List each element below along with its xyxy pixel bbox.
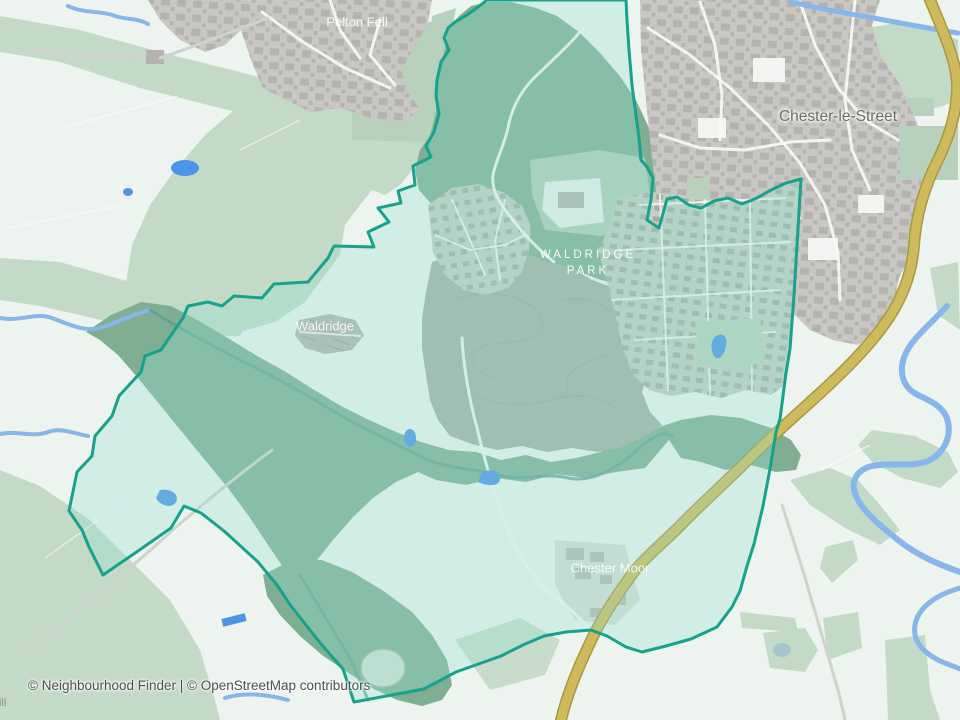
map-canvas[interactable]: Pelton Fell Chester-le-Street WALDRIDGE … bbox=[0, 0, 960, 720]
attribution-link[interactable]: © Neighbourhood Finder | © OpenStreetMap… bbox=[28, 678, 370, 693]
map-tiles bbox=[0, 0, 960, 720]
